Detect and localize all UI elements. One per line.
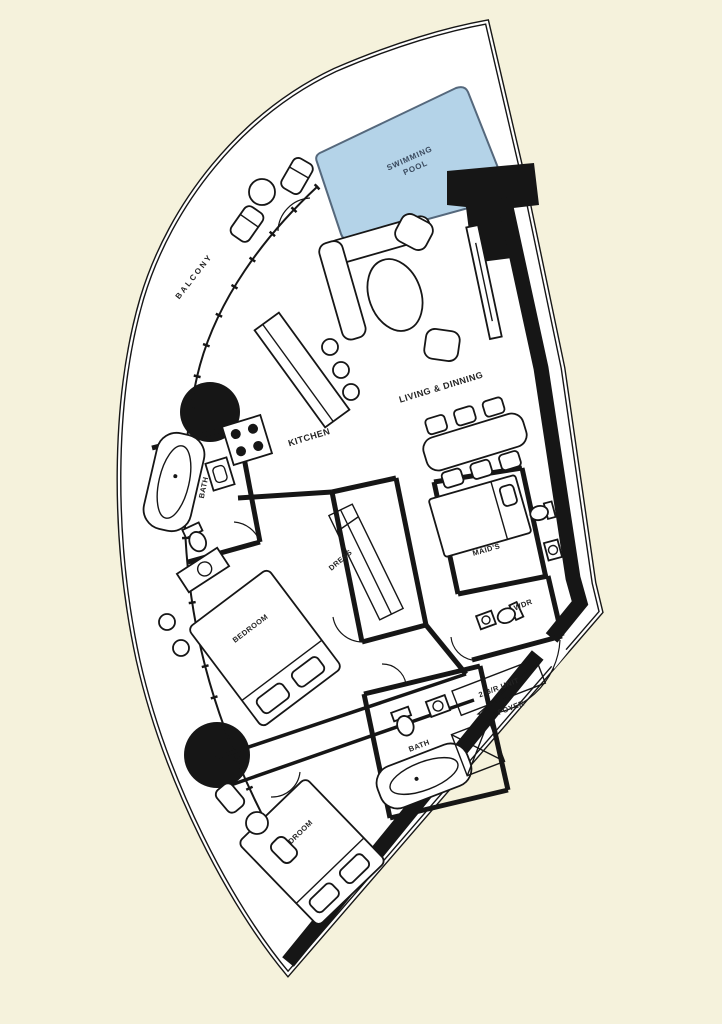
stool-3 [343, 384, 359, 400]
planter-1 [159, 614, 175, 630]
balcony-table [249, 179, 275, 205]
stool-2 [333, 362, 349, 378]
column-bedroom [184, 722, 250, 788]
armchair-bottom [423, 328, 461, 362]
planter-2 [173, 640, 189, 656]
balcony-table-2 [246, 812, 268, 834]
floor-plan-page: SWIMMING POOL [0, 0, 722, 1024]
floor-plan-svg: SWIMMING POOL [0, 0, 722, 1024]
stool-1 [322, 339, 338, 355]
